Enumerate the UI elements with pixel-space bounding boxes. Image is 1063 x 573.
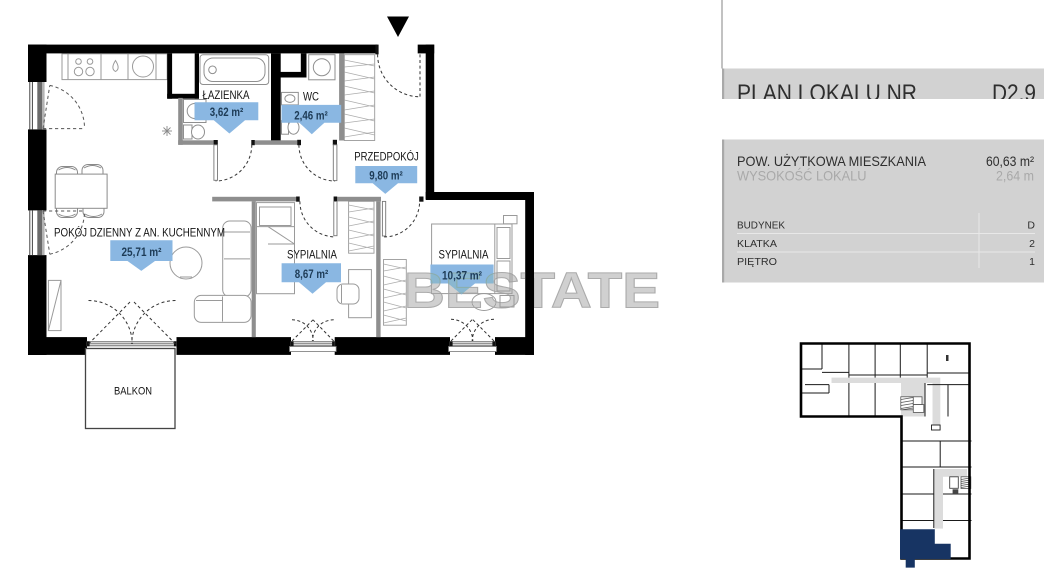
svg-text:PRZEDPOKÓJ: PRZEDPOKÓJ [354, 149, 419, 164]
svg-text:ŁAZIENKA: ŁAZIENKA [203, 88, 250, 102]
svg-text:8,67 m²: 8,67 m² [295, 267, 329, 281]
svg-text:3,62 m²: 3,62 m² [210, 105, 244, 119]
svg-text:WYSOKOŚĆ LOKALU: WYSOKOŚĆ LOKALU [737, 167, 867, 184]
svg-text:2,46 m²: 2,46 m² [294, 108, 328, 122]
svg-text:POKÓJ DZIENNY Z AN. KUCHENNYM: POKÓJ DZIENNY Z AN. KUCHENNYM [54, 224, 225, 239]
svg-text:BUDYNEK: BUDYNEK [737, 220, 785, 232]
svg-text:BALKON: BALKON [114, 386, 152, 398]
svg-text:SYPIALNIA: SYPIALNIA [439, 247, 489, 261]
svg-text:D: D [1027, 220, 1035, 232]
svg-text:1: 1 [1029, 256, 1035, 268]
svg-text:SYPIALNIA: SYPIALNIA [287, 247, 337, 261]
svg-text:BESTATE: BESTATE [404, 263, 660, 319]
svg-text:25,71 m²: 25,71 m² [122, 245, 162, 259]
svg-text:WC: WC [303, 90, 319, 104]
svg-text:2,64 m: 2,64 m [996, 168, 1034, 184]
svg-text:2: 2 [1029, 238, 1035, 250]
svg-text:60,63 m²: 60,63 m² [986, 153, 1034, 169]
svg-text:POW. UŻYTKOWA MIESZKANIA: POW. UŻYTKOWA MIESZKANIA [737, 152, 927, 169]
svg-text:9,80 m²: 9,80 m² [369, 168, 403, 182]
svg-text:KLATKA: KLATKA [737, 238, 777, 250]
svg-text:PIĘTRO: PIĘTRO [737, 256, 777, 268]
